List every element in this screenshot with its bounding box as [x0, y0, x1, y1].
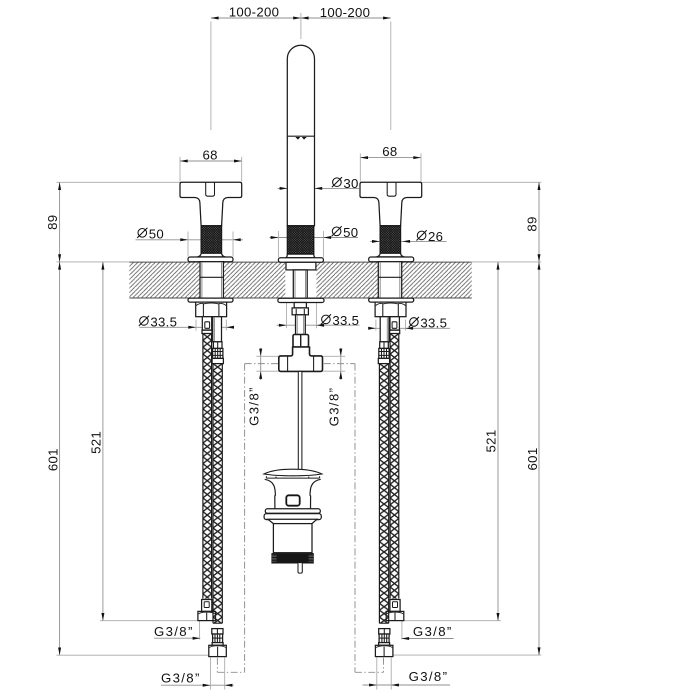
svg-text:89: 89: [525, 216, 540, 231]
svg-text:89: 89: [45, 215, 60, 230]
svg-text:G3/8”: G3/8”: [161, 671, 201, 686]
svg-text:68: 68: [203, 147, 218, 162]
svg-text:601: 601: [525, 448, 540, 471]
svg-text:33.5: 33.5: [150, 315, 177, 330]
svg-text:33.5: 33.5: [420, 316, 447, 331]
svg-text:G3/8”: G3/8”: [247, 386, 262, 426]
svg-text:30: 30: [343, 176, 358, 191]
svg-text:G3/8”: G3/8”: [409, 669, 449, 684]
svg-text:100-200: 100-200: [229, 4, 280, 19]
svg-text:601: 601: [45, 448, 60, 471]
svg-text:521: 521: [484, 430, 499, 453]
svg-text:G3/8”: G3/8”: [413, 624, 453, 639]
svg-text:33.5: 33.5: [332, 313, 359, 328]
svg-text:50: 50: [149, 226, 164, 241]
svg-text:50: 50: [343, 225, 358, 240]
svg-text:100-200: 100-200: [320, 5, 371, 20]
svg-text:68: 68: [382, 144, 397, 159]
svg-text:26: 26: [428, 229, 443, 244]
svg-text:521: 521: [89, 431, 104, 454]
svg-text:G3/8”: G3/8”: [327, 387, 342, 427]
svg-text:G3/8”: G3/8”: [154, 624, 194, 639]
